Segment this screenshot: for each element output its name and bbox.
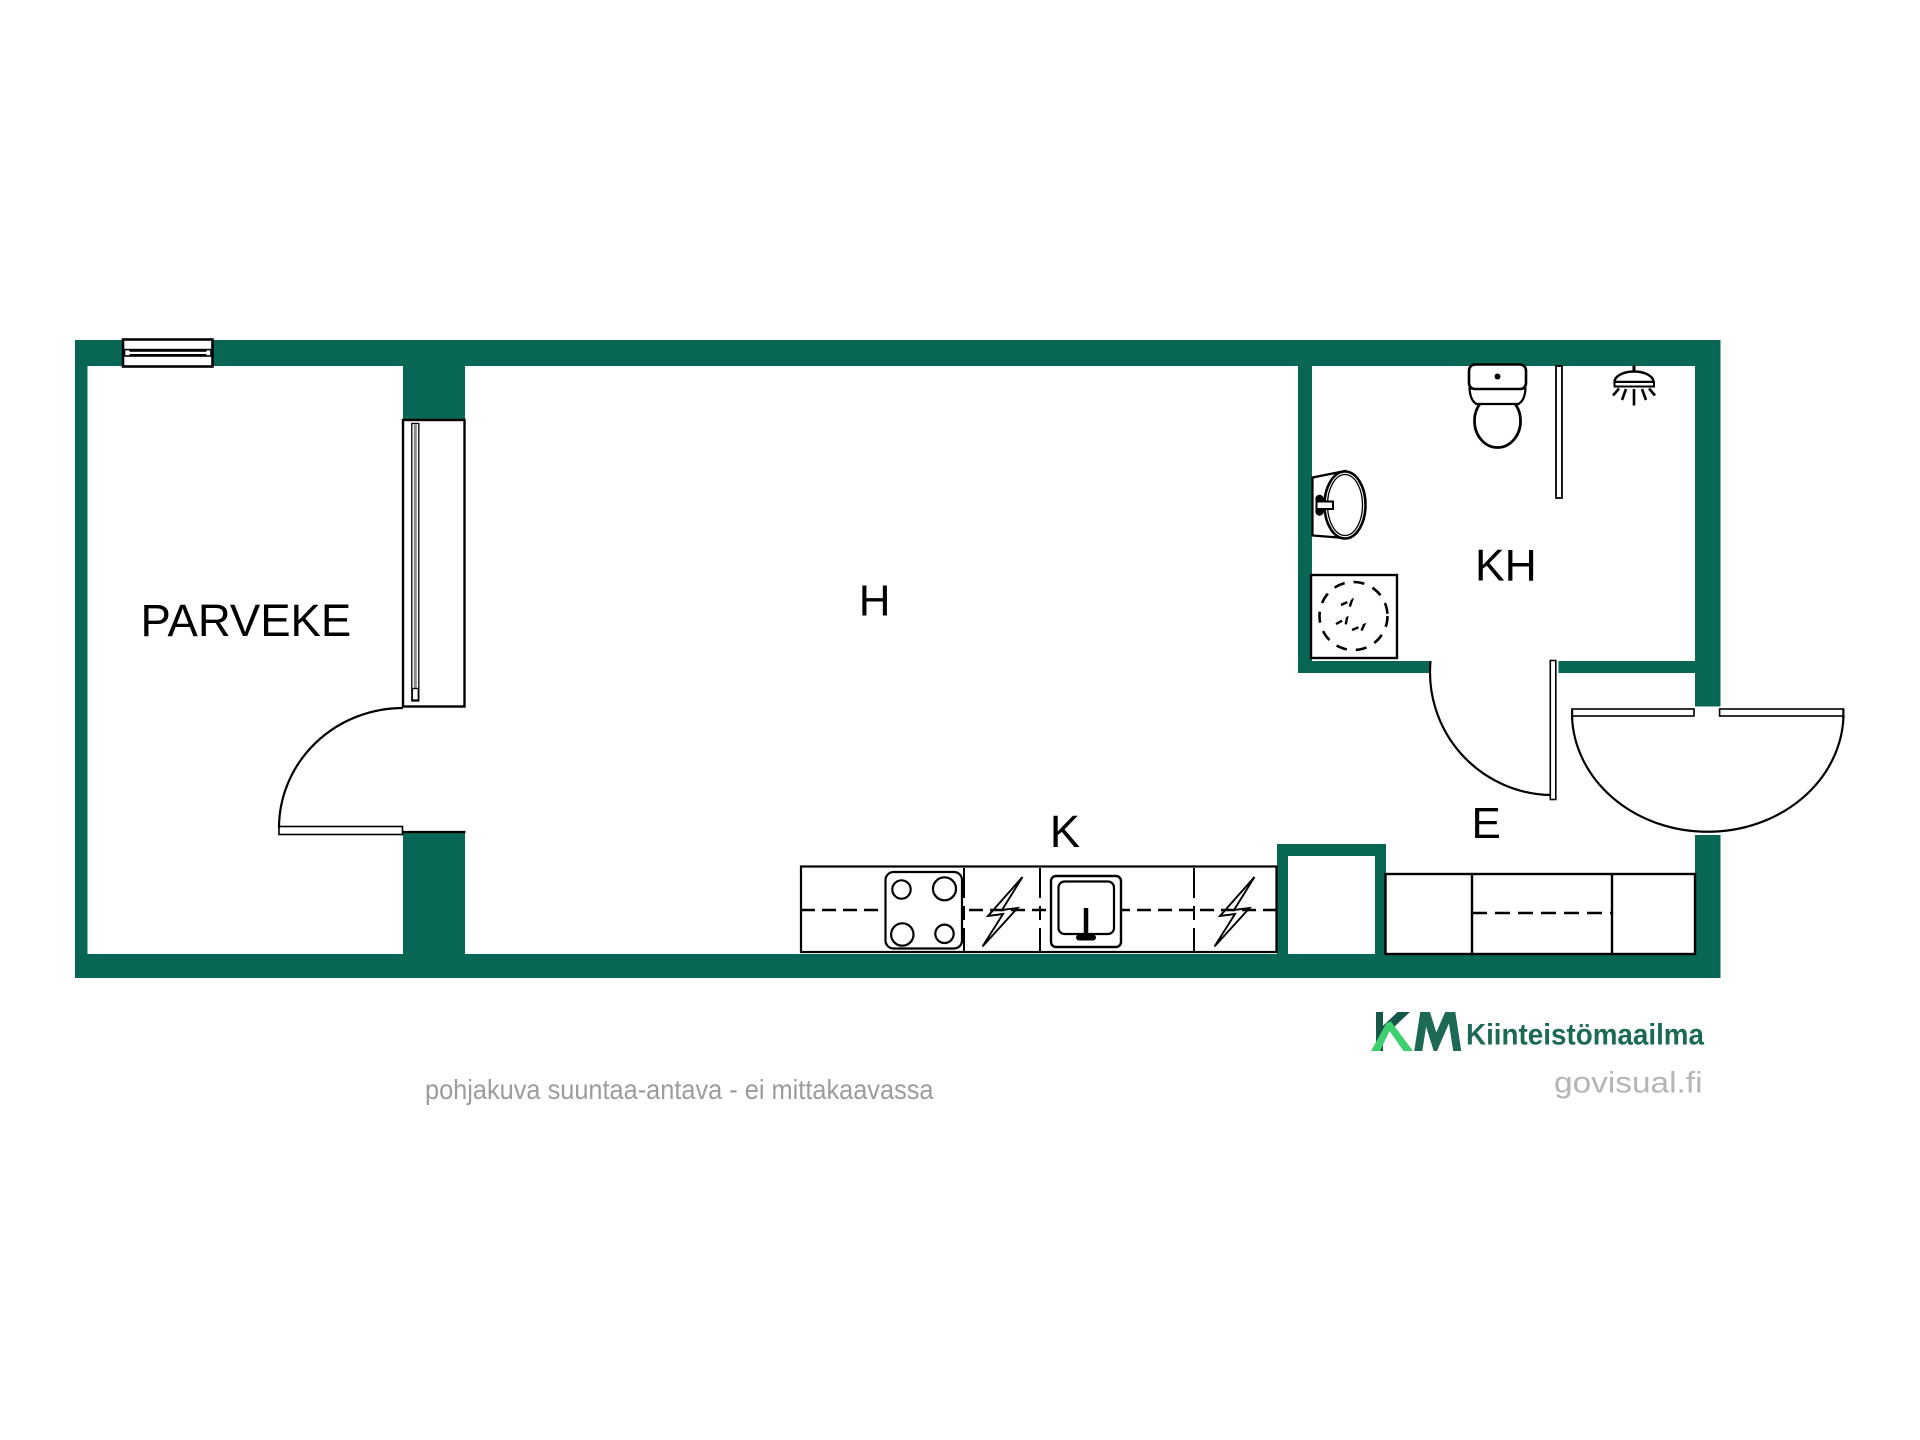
svg-text:K: K	[1050, 806, 1080, 857]
svg-text:Kiinteistömaailma: Kiinteistömaailma	[1466, 1019, 1704, 1052]
svg-text:PARVEKE: PARVEKE	[141, 595, 352, 646]
svg-text:H: H	[859, 577, 891, 626]
svg-text:govisual.fi: govisual.fi	[1554, 1067, 1703, 1100]
svg-text:E: E	[1472, 799, 1501, 848]
svg-text:KH: KH	[1475, 542, 1537, 591]
svg-text:pohjakuva suuntaa-antava - ei: pohjakuva suuntaa-antava - ei mittakaava…	[425, 1074, 934, 1105]
